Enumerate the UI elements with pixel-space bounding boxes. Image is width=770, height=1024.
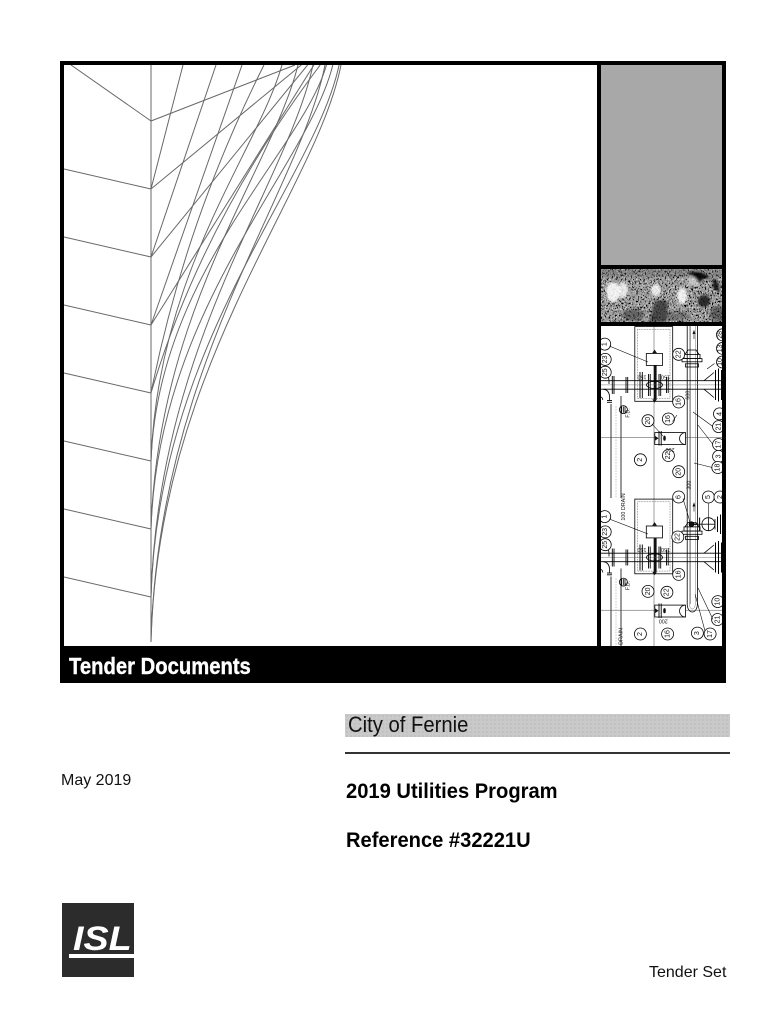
svg-text:16: 16	[665, 415, 672, 423]
svg-text:28: 28	[717, 331, 722, 339]
svg-text:200: 200	[659, 618, 668, 624]
svg-text:16: 16	[664, 630, 671, 638]
svg-text:3: 3	[715, 454, 722, 458]
svg-text:25: 25	[602, 541, 609, 549]
svg-text:17: 17	[715, 441, 722, 449]
svg-text:20: 20	[676, 468, 683, 476]
svg-text:22: 22	[664, 588, 671, 596]
svg-text:20: 20	[645, 587, 652, 595]
svg-text:22: 22	[676, 350, 683, 358]
svg-text:150: 150	[661, 374, 670, 380]
svg-text:1: 1	[602, 342, 609, 346]
svg-text:F.D.: F.D.	[626, 408, 632, 418]
svg-text:6: 6	[676, 495, 683, 499]
svg-text:DRAIN: DRAIN	[619, 628, 625, 645]
svg-text:10: 10	[715, 598, 722, 606]
svg-text:2: 2	[637, 632, 644, 636]
svg-text:2: 2	[717, 495, 722, 499]
svg-text:13: 13	[717, 344, 722, 352]
svg-text:17: 17	[707, 630, 714, 638]
svg-text:18: 18	[715, 464, 722, 472]
svg-text:150: 150	[661, 546, 670, 552]
svg-text:21: 21	[715, 423, 722, 431]
svg-text:25: 25	[602, 368, 609, 376]
svg-text:23: 23	[602, 355, 609, 363]
svg-text:150: 150	[638, 374, 647, 380]
svg-text:4: 4	[716, 412, 722, 416]
svg-text:21: 21	[714, 616, 721, 624]
svg-text:600: 600	[686, 391, 692, 400]
svg-text:2: 2	[637, 458, 644, 462]
svg-text:F.D.: F.D.	[626, 581, 632, 591]
svg-text:23: 23	[602, 528, 609, 536]
svg-text:150: 150	[638, 546, 647, 552]
svg-text:22: 22	[675, 533, 682, 541]
svg-text:200: 200	[666, 446, 675, 452]
svg-text:300: 300	[687, 481, 693, 490]
svg-text:5: 5	[705, 495, 712, 499]
svg-text:100 DRAIN: 100 DRAIN	[621, 493, 627, 520]
svg-text:16: 16	[676, 398, 683, 406]
svg-text:1: 1	[602, 515, 609, 519]
svg-text:16: 16	[676, 570, 683, 578]
svg-text:20: 20	[645, 417, 652, 425]
svg-text:10: 10	[717, 358, 722, 366]
svg-text:3: 3	[694, 631, 701, 635]
